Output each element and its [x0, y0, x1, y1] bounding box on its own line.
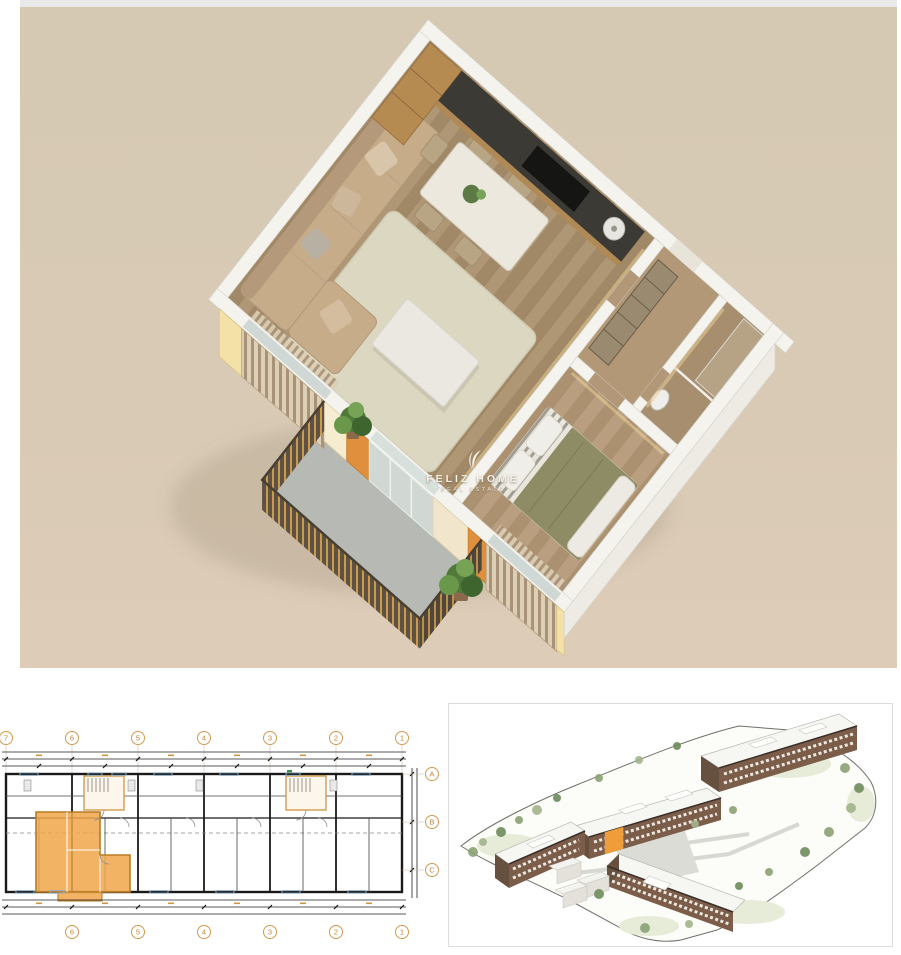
- grid-label: 2: [334, 928, 338, 937]
- grid-bubbles-bottom: 6 5 4 3 2 1: [66, 926, 409, 939]
- site-plan: [449, 704, 892, 946]
- grid-bubbles-top: 7 6 5 4 3 2 1: [0, 732, 409, 775]
- building-plan: [6, 773, 402, 901]
- real-estate-listing-image: { "page": { "background": "#ffffff" }, "…: [0, 0, 901, 950]
- stair-core: [84, 776, 124, 810]
- architectural-floor-plan: 7 6 5 4 3 2 1: [0, 700, 445, 950]
- grid-label: B: [429, 818, 434, 827]
- grid-label: C: [429, 866, 435, 875]
- grid-label: 5: [136, 734, 140, 743]
- grid-label: 1: [400, 734, 404, 743]
- dimension-text-marks-bottom: [36, 903, 372, 905]
- grid-label: 7: [4, 734, 8, 743]
- floorplan-3d: [20, 7, 897, 668]
- grid-label: 1: [400, 928, 404, 937]
- grid-label: 4: [202, 734, 206, 743]
- hero-3d-floorplan-panel: FELIZ HOME REAL ESTATE: [20, 7, 897, 668]
- grid-label: 2: [334, 734, 338, 743]
- top-strip: [20, 0, 897, 7]
- site-plan-panel: [448, 703, 893, 947]
- grid-label: A: [429, 770, 434, 779]
- grid-label: 6: [70, 734, 74, 743]
- stair-core: [286, 776, 326, 810]
- grid-label: 6: [70, 928, 74, 937]
- grid-right: A B C: [402, 768, 439, 899]
- grid-label: 4: [202, 928, 206, 937]
- cream-wall-face: [557, 606, 565, 657]
- grid-label: 5: [136, 928, 140, 937]
- architectural-floor-plan-panel: 7 6 5 4 3 2 1: [0, 700, 445, 950]
- grid-label: 3: [268, 928, 272, 937]
- grid-label: 3: [268, 734, 272, 743]
